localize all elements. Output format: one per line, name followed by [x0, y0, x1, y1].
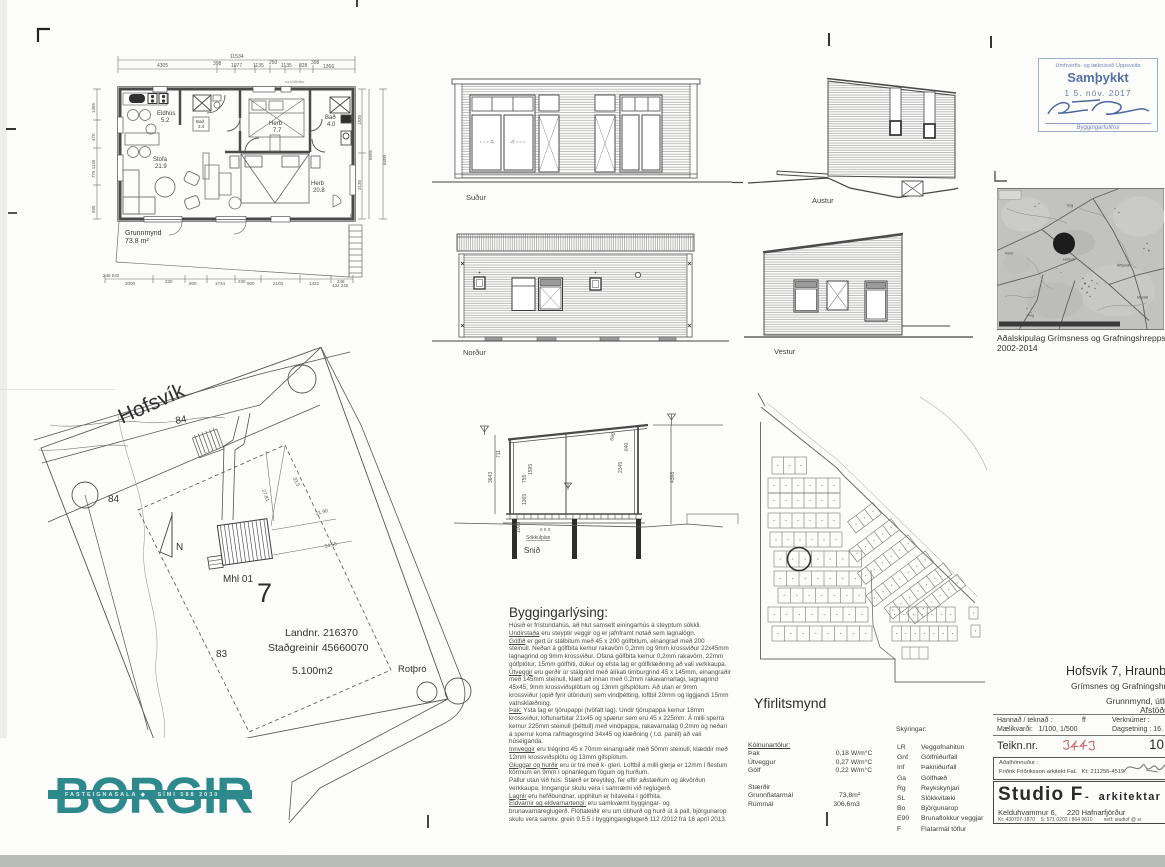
svg-text:1000: 1000	[516, 522, 522, 533]
svg-text:230: 230	[165, 279, 173, 284]
svg-text:Austur: Austur	[812, 196, 834, 205]
svg-text:900: 900	[247, 281, 255, 286]
svg-text:432 246: 432 246	[332, 283, 349, 288]
svg-text:N: N	[176, 542, 183, 553]
svg-text:250: 250	[269, 60, 278, 66]
svg-text:84: 84	[108, 494, 120, 505]
svg-text:Sökkulplan: Sökkulplan	[526, 535, 551, 541]
svg-text:7: 7	[257, 578, 272, 608]
svg-text:1365: 1365	[522, 494, 528, 505]
svg-text:246 532: 246 532	[103, 273, 120, 278]
svg-text:230: 230	[238, 279, 246, 284]
svg-text:1135: 1135	[253, 63, 264, 69]
svg-text:20.8: 20.8	[313, 188, 325, 194]
svg-text:21.90: 21.90	[315, 508, 329, 517]
svg-text:2100: 2100	[273, 281, 284, 286]
svg-text:900: 900	[189, 281, 197, 286]
svg-text:690: 690	[609, 432, 617, 442]
svg-text:ca köflóttur: ca köflóttur	[285, 79, 305, 84]
svg-text:398: 398	[213, 61, 222, 67]
svg-text:Staðgreinir 45660070: Staðgreinir 45660070	[268, 642, 369, 654]
svg-text:Rotþró: Rotþró	[398, 664, 427, 675]
svg-text:398: 398	[311, 60, 320, 66]
svg-text:1734: 1734	[215, 281, 226, 286]
svg-text:3000: 3000	[125, 281, 136, 286]
svg-text:x x x: x x x	[540, 527, 551, 533]
svg-text:84: 84	[175, 414, 188, 427]
svg-text:5.100m2: 5.100m2	[292, 665, 333, 677]
svg-text:Grunnmynd: Grunnmynd	[125, 230, 162, 237]
svg-text:24.56: 24.56	[324, 541, 338, 550]
svg-text:73.8 m²: 73.8 m²	[125, 238, 149, 245]
svg-text:3.4: 3.4	[198, 124, 205, 129]
svg-text:775 1135: 775 1135	[91, 159, 96, 178]
svg-text:4368: 4368	[670, 472, 676, 483]
svg-text:1135: 1135	[281, 63, 292, 69]
svg-text:Snið: Snið	[524, 546, 541, 555]
svg-text:4.0: 4.0	[327, 122, 336, 128]
svg-text:3643: 3643	[488, 472, 494, 483]
svg-text:27.81: 27.81	[260, 489, 270, 503]
svg-text:Þing: Þing	[1027, 314, 1034, 318]
svg-text:7.7: 7.7	[273, 128, 282, 134]
svg-text:Stofa: Stofa	[153, 157, 168, 163]
svg-text:Bað: Bað	[325, 114, 336, 121]
svg-text:1365: 1365	[91, 102, 96, 113]
svg-text:Yfirlitsmynd: Yfirlitsmynd	[754, 695, 826, 711]
svg-text:Mhl 01: Mhl 01	[223, 574, 253, 585]
svg-text:Álftavatn: Álftavatn	[1117, 264, 1131, 268]
svg-text:33.5: 33.5	[291, 476, 301, 488]
svg-text:Sog: Sog	[1067, 204, 1073, 208]
svg-text:4305: 4305	[157, 63, 168, 69]
svg-text:Kerið: Kerið	[1005, 251, 1013, 256]
svg-text:711: 711	[496, 450, 502, 458]
svg-text:1366: 1366	[323, 64, 334, 70]
svg-text:640: 640	[624, 442, 630, 451]
svg-text:Herb: Herb	[311, 181, 325, 187]
svg-text:828: 828	[299, 63, 308, 69]
svg-text:390: 390	[349, 213, 354, 221]
svg-text:1432: 1432	[309, 281, 320, 286]
svg-text:Landnr. 216370: Landnr. 216370	[285, 627, 358, 639]
svg-text:470: 470	[91, 133, 96, 141]
svg-text:Vestur: Vestur	[774, 347, 796, 356]
svg-text:Herb: Herb	[269, 121, 283, 127]
svg-text:3130: 3130	[357, 179, 362, 190]
svg-text:1595: 1595	[528, 464, 534, 475]
svg-text:Suður: Suður	[466, 193, 487, 202]
svg-text:1077: 1077	[231, 63, 242, 69]
svg-text:Hofsvík: Hofsvík	[1063, 258, 1075, 262]
svg-text:Eldhús: Eldhús	[157, 111, 175, 117]
svg-text:1830: 1830	[357, 114, 362, 125]
svg-text:585: 585	[91, 205, 96, 213]
svg-text:5.2: 5.2	[161, 118, 170, 124]
svg-text:2345: 2345	[618, 462, 624, 473]
svg-text:6600: 6600	[382, 154, 387, 165]
svg-text:6605: 6605	[368, 149, 373, 160]
svg-text:11534: 11534	[230, 54, 244, 60]
svg-text:83: 83	[216, 649, 228, 660]
svg-text:Mosfell: Mosfell	[1137, 296, 1148, 300]
svg-text:21.9: 21.9	[155, 164, 167, 170]
